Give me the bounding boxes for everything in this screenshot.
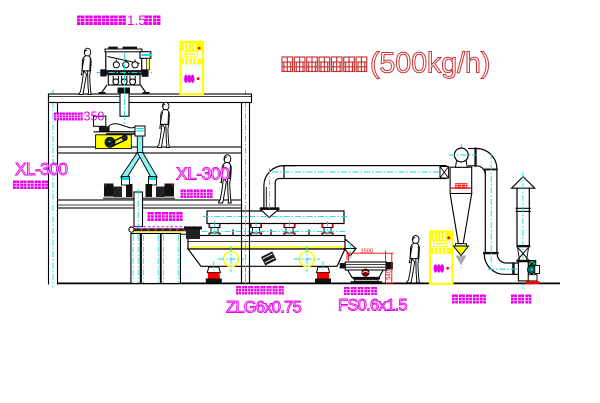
svg-text:1.5: 1.5 — [127, 13, 146, 28]
svg-text:XL-300: XL-300 — [15, 159, 68, 179]
svg-text:FS0.6x1.5: FS0.6x1.5 — [338, 297, 407, 315]
svg-text:ZLG6x0.75: ZLG6x0.75 — [226, 299, 301, 317]
svg-text:XL-300: XL-300 — [176, 164, 230, 184]
svg-text:540: 540 — [387, 269, 393, 280]
svg-text:1500: 1500 — [361, 248, 373, 254]
svg-text:350: 350 — [84, 110, 105, 124]
svg-text:(500kg/h): (500kg/h) — [370, 48, 490, 80]
